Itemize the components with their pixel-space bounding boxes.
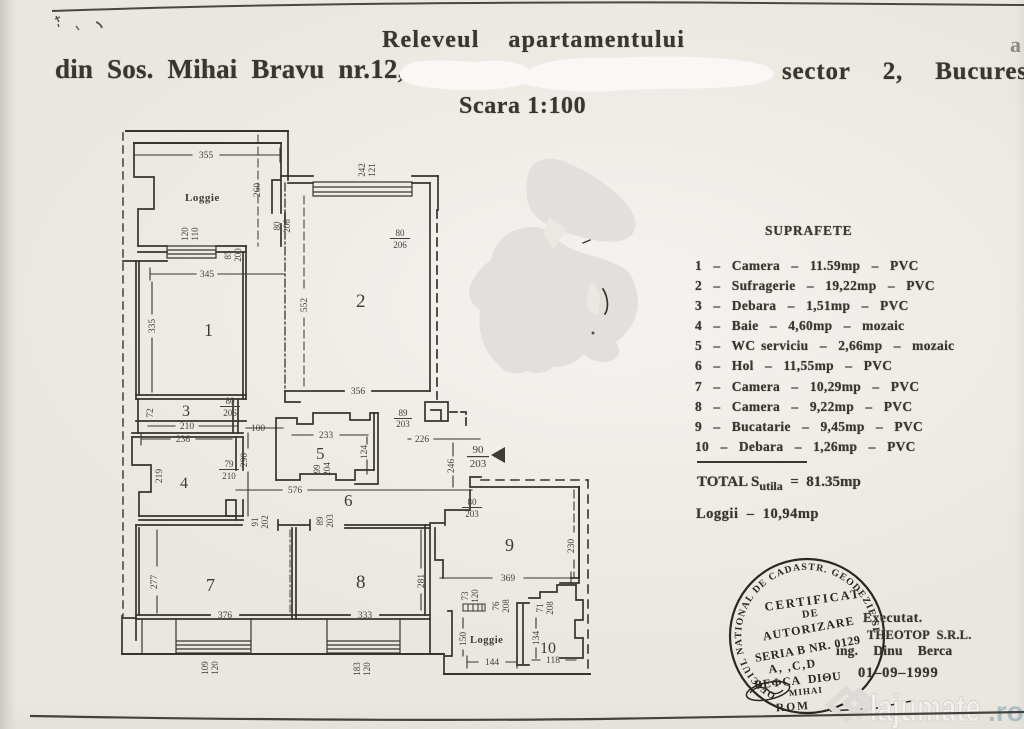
svg-text:356: 356 — [351, 387, 366, 397]
svg-text:134: 134 — [532, 631, 542, 646]
svg-text:236: 236 — [176, 435, 191, 445]
svg-text:200: 200 — [233, 248, 243, 262]
svg-text:246: 246 — [447, 459, 457, 474]
svg-text:144: 144 — [485, 658, 500, 668]
svg-text:226: 226 — [415, 435, 430, 445]
svg-text:76: 76 — [491, 601, 501, 611]
svg-text:72: 72 — [146, 408, 156, 418]
svg-text:208: 208 — [545, 601, 555, 615]
svg-text:6: 6 — [344, 491, 353, 510]
svg-text:2: 2 — [356, 291, 366, 312]
svg-text:120: 120 — [470, 589, 480, 603]
svg-text:5: 5 — [316, 444, 325, 463]
svg-text:Loggie: Loggie — [470, 635, 503, 646]
svg-text:110: 110 — [190, 227, 200, 241]
svg-text:206: 206 — [393, 240, 407, 250]
svg-text:Loggie: Loggie — [185, 192, 220, 204]
svg-text:260: 260 — [253, 183, 263, 198]
svg-text:120: 120 — [362, 662, 372, 676]
svg-text:89: 89 — [399, 408, 409, 418]
svg-text:204: 204 — [322, 462, 332, 476]
svg-text:85: 85 — [223, 250, 233, 260]
svg-text:206: 206 — [282, 219, 292, 233]
svg-text:183: 183 — [352, 662, 362, 676]
svg-text:210: 210 — [180, 422, 195, 432]
svg-text:203: 203 — [325, 514, 335, 528]
svg-text:120: 120 — [210, 661, 220, 675]
svg-text:369: 369 — [501, 574, 516, 584]
svg-text:210: 210 — [222, 471, 236, 481]
svg-text:80: 80 — [272, 221, 282, 231]
svg-text:576: 576 — [288, 486, 303, 496]
svg-text:89: 89 — [315, 516, 325, 526]
svg-text:99: 99 — [312, 464, 322, 474]
svg-text:208: 208 — [501, 599, 511, 613]
svg-text:80: 80 — [226, 396, 236, 406]
svg-text:203: 203 — [470, 458, 487, 470]
svg-text:91: 91 — [250, 518, 260, 527]
svg-text:1: 1 — [204, 320, 213, 340]
svg-text:277: 277 — [150, 575, 160, 590]
svg-text:376: 376 — [218, 611, 233, 621]
svg-text:290: 290 — [240, 453, 250, 468]
svg-text:8: 8 — [356, 572, 366, 593]
svg-text:120: 120 — [180, 227, 190, 241]
svg-text:552: 552 — [300, 298, 310, 313]
svg-text:230: 230 — [567, 539, 577, 554]
svg-text:242: 242 — [357, 163, 367, 177]
svg-text:79: 79 — [225, 459, 235, 469]
svg-text:203: 203 — [396, 419, 410, 429]
svg-text:3: 3 — [182, 403, 190, 420]
svg-text:80: 80 — [396, 228, 406, 238]
svg-text:73: 73 — [460, 591, 470, 601]
svg-text:80: 80 — [468, 497, 478, 507]
svg-text:219: 219 — [155, 469, 165, 484]
svg-text:100: 100 — [251, 424, 266, 434]
svg-text:90: 90 — [473, 444, 485, 456]
svg-text:150: 150 — [459, 632, 469, 647]
svg-text:345: 345 — [200, 270, 215, 280]
svg-text:355: 355 — [199, 151, 214, 161]
svg-text:333: 333 — [358, 611, 373, 621]
svg-text:71: 71 — [535, 604, 545, 613]
svg-text:10: 10 — [540, 640, 556, 657]
svg-text:335: 335 — [148, 319, 158, 334]
svg-text:DE: DE — [801, 608, 819, 621]
svg-text:9: 9 — [505, 535, 514, 555]
svg-text:281: 281 — [417, 574, 427, 589]
svg-text:233: 233 — [319, 431, 334, 441]
svg-text:203: 203 — [465, 509, 479, 519]
svg-text:4: 4 — [180, 475, 188, 492]
svg-text:121: 121 — [367, 163, 377, 177]
svg-text:124: 124 — [360, 445, 370, 460]
svg-text:202: 202 — [260, 515, 270, 529]
svg-text:109: 109 — [200, 661, 210, 675]
svg-text:7: 7 — [206, 575, 215, 595]
svg-text:206: 206 — [223, 408, 237, 418]
svg-text:118: 118 — [546, 656, 560, 666]
